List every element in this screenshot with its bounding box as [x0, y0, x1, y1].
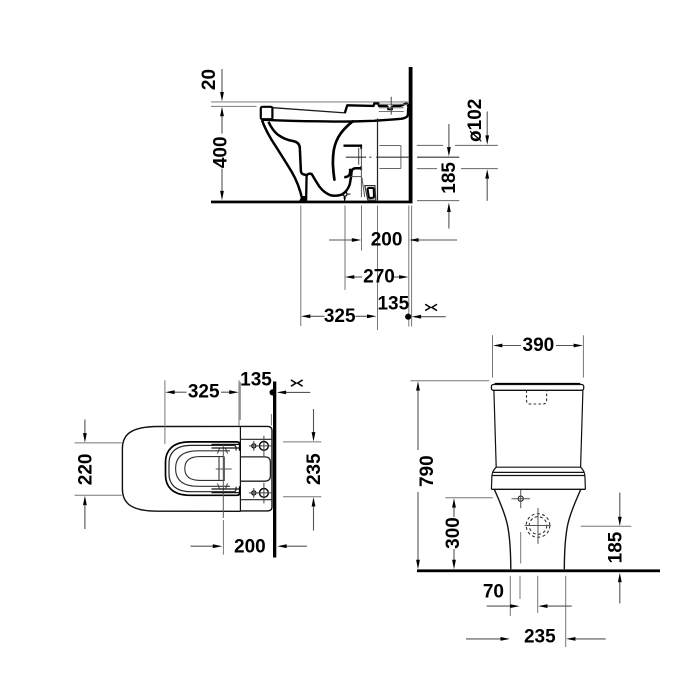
svg-text:235: 235 [524, 627, 556, 648]
svg-text:ø102: ø102 [465, 99, 486, 142]
svg-text:235: 235 [304, 453, 325, 485]
svg-text:300: 300 [443, 517, 464, 549]
svg-text:185: 185 [606, 531, 627, 563]
svg-text:325: 325 [188, 382, 220, 403]
svg-text:200: 200 [234, 536, 266, 557]
svg-text:135: 135 [240, 370, 272, 391]
svg-text:200: 200 [371, 230, 403, 251]
svg-text:270: 270 [363, 267, 395, 288]
svg-text:790: 790 [417, 455, 438, 487]
svg-text:400: 400 [211, 136, 232, 168]
svg-text:20: 20 [199, 69, 220, 90]
svg-text:185: 185 [439, 162, 460, 194]
svg-text:70: 70 [483, 582, 504, 603]
svg-text:135: 135 [377, 294, 409, 315]
svg-text:325: 325 [324, 306, 356, 327]
svg-text:220: 220 [76, 454, 97, 486]
svg-text:390: 390 [523, 335, 555, 356]
